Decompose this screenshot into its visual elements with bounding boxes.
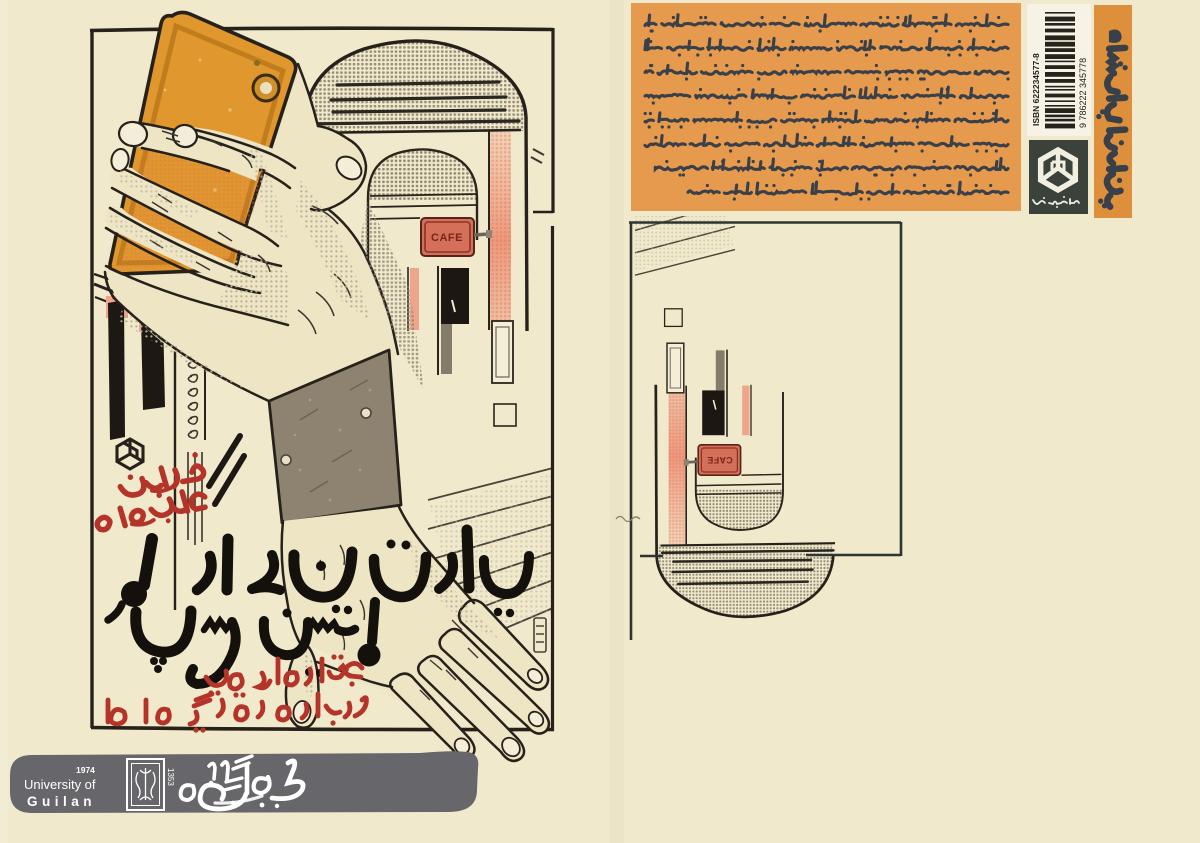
svg-text:1353: 1353	[166, 768, 175, 786]
svg-text:1974: 1974	[76, 765, 95, 775]
svg-text:University of: University of	[24, 777, 96, 792]
svg-text:Guilan: Guilan	[27, 794, 96, 809]
svg-text:9 786222 345778: 9 786222 345778	[1078, 58, 1088, 128]
svg-text:ISBN 622234577-8: ISBN 622234577-8	[1031, 53, 1041, 126]
svg-text:CAFE: CAFE	[431, 232, 463, 244]
